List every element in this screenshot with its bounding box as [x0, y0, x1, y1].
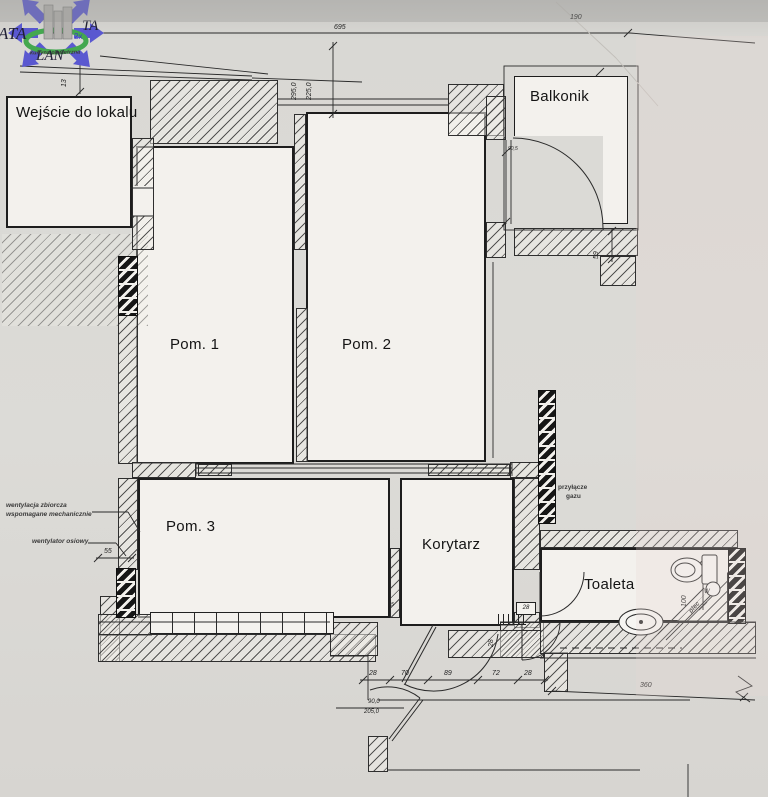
label-vent-line1: wentylacja zbiorcza	[6, 502, 67, 509]
label-gas-line1: przyłącze	[558, 484, 587, 491]
dim-pier: 28	[488, 633, 497, 647]
doors	[370, 136, 603, 741]
dim-door-height: 205,0	[364, 709, 379, 715]
dimension-ticks	[18, 29, 748, 701]
floorplan-scan: ATA TA LAN 2x Wejście do lokalu Balkonik…	[0, 0, 768, 797]
sink-drain	[640, 621, 643, 624]
dim-right-mid: 59	[593, 239, 602, 259]
logo-text-ta: TA	[82, 18, 99, 34]
dim-left-bottom: 55	[104, 548, 112, 555]
dim-toilet-depth: 100	[681, 583, 690, 607]
dim-partition: 15	[388, 602, 394, 608]
dim-left-top: 13	[61, 67, 70, 87]
lower-door-leaf	[389, 698, 423, 741]
wc-bowl-icon	[671, 558, 703, 582]
label-w-mark: W	[704, 589, 710, 595]
dim-chain-0: 28	[369, 670, 377, 677]
logo-buildings-icon	[44, 5, 72, 39]
company-logo: ATA TA LAN 2x	[0, 0, 104, 74]
dim-top-right: 190	[570, 14, 582, 21]
construction-lines	[20, 2, 756, 797]
beam-lines	[196, 462, 512, 476]
label-fan: wentylator osiowy	[32, 538, 88, 545]
dim-toilet-door: 28	[516, 602, 536, 615]
dim-chain-2: 89	[444, 670, 452, 677]
main-door-arc	[404, 634, 498, 691]
dimension-lines	[18, 29, 755, 708]
label-balcony: Balkonik	[530, 88, 589, 105]
label-gas-line2: gazu	[566, 493, 581, 500]
window-band-top	[278, 99, 448, 105]
toilet-door-arc	[540, 572, 584, 616]
dim-balcony-door: 90,5	[508, 146, 518, 152]
dim-chain-1: 70	[401, 670, 409, 677]
label-toilet: Toaleta	[584, 576, 634, 593]
side-door-arc	[522, 622, 560, 660]
wc-tank-icon	[702, 555, 717, 584]
dim-v1: 295,0	[291, 74, 300, 100]
dim-v2: 225,0	[306, 74, 315, 100]
label-room1: Pom. 1	[170, 336, 219, 353]
label-vent-line2: wspomagane mechanicznie	[6, 511, 92, 518]
leader-lines	[88, 56, 404, 708]
label-corridor: Korytarz	[422, 536, 480, 553]
dim-chain-3: 72	[492, 670, 500, 677]
dim-door-width: 90,0	[368, 699, 380, 705]
logo-text-ata: ATA	[0, 24, 27, 43]
balcony-door-frame	[506, 140, 511, 224]
entrance-window	[130, 188, 154, 216]
logo-badge: 2x	[74, 32, 82, 41]
label-room2: Pom. 2	[342, 336, 391, 353]
label-entrance: Wejście do lokalu	[16, 104, 138, 121]
label-room3: Pom. 3	[166, 518, 215, 535]
break-symbol	[736, 676, 752, 702]
label-air-curtain: kurtyna powietrzna	[30, 50, 80, 57]
dim-bottom-right: 360	[640, 682, 652, 689]
lower-door-arc	[370, 687, 420, 698]
dim-chain-4: 28	[524, 670, 532, 677]
dim-top: 695	[334, 24, 346, 31]
